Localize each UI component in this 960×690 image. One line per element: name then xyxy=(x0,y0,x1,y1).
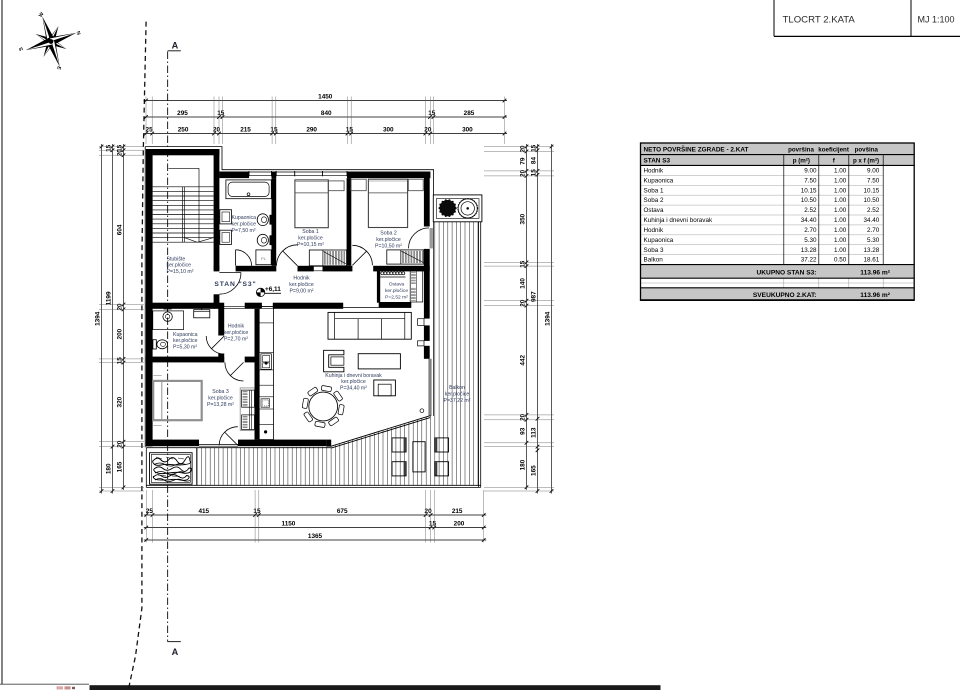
svg-text:TLOCRT 2.KATA: TLOCRT 2.KATA xyxy=(783,15,856,26)
svg-text:15: 15 xyxy=(117,357,124,365)
svg-text:165: 165 xyxy=(117,461,124,472)
svg-text:604: 604 xyxy=(117,224,124,235)
svg-text:1.00: 1.00 xyxy=(834,187,847,194)
svg-text:10.15: 10.15 xyxy=(801,187,817,194)
svg-text:1150: 1150 xyxy=(282,521,296,528)
svg-text:5.30: 5.30 xyxy=(867,237,880,244)
svg-text:15: 15 xyxy=(346,127,354,134)
svg-text:15: 15 xyxy=(531,144,538,152)
svg-text:Kupaonicaker.pločiceP=7,50 m²: Kupaonicaker.pločiceP=7,50 m² xyxy=(232,215,257,234)
svg-text:25: 25 xyxy=(146,508,154,515)
svg-text:250: 250 xyxy=(178,127,189,134)
svg-text:15: 15 xyxy=(428,110,436,117)
svg-text:Kupaonica: Kupaonica xyxy=(644,177,674,184)
svg-text:290: 290 xyxy=(306,127,317,134)
svg-text:Soba 3: Soba 3 xyxy=(644,247,664,254)
svg-text:10.50: 10.50 xyxy=(864,197,880,204)
svg-text:2.70: 2.70 xyxy=(867,227,880,234)
svg-text:1.00: 1.00 xyxy=(834,167,847,174)
svg-text:STAN "S3": STAN "S3" xyxy=(214,281,256,288)
svg-text:1365: 1365 xyxy=(308,533,323,540)
svg-text:415: 415 xyxy=(198,508,209,515)
svg-text:1.00: 1.00 xyxy=(834,237,847,244)
svg-text:Hodnik: Hodnik xyxy=(644,167,664,174)
svg-text:STAN S3: STAN S3 xyxy=(644,158,671,165)
svg-text:350: 350 xyxy=(520,213,527,224)
svg-text:1199: 1199 xyxy=(106,291,113,305)
svg-text:442: 442 xyxy=(520,354,527,365)
svg-text:10.15: 10.15 xyxy=(864,187,880,194)
svg-text:koeficijent: koeficijent xyxy=(818,147,849,154)
svg-text:Balkon: Balkon xyxy=(644,257,664,264)
svg-text:površina: površina xyxy=(788,147,814,154)
svg-text:15: 15 xyxy=(270,127,278,134)
svg-text:215: 215 xyxy=(240,127,251,134)
svg-text:povšina: povšina xyxy=(855,147,879,154)
svg-text:1450: 1450 xyxy=(318,94,333,101)
svg-text:285: 285 xyxy=(464,110,475,117)
svg-text:PL: PL xyxy=(261,256,267,261)
svg-text:15: 15 xyxy=(253,508,261,515)
svg-text:25: 25 xyxy=(146,127,154,134)
svg-text:1394: 1394 xyxy=(95,311,102,326)
svg-text:300: 300 xyxy=(462,127,473,134)
svg-text:+6,11: +6,11 xyxy=(265,286,281,293)
svg-text:Soba 1: Soba 1 xyxy=(644,187,664,194)
svg-text:5.30: 5.30 xyxy=(804,237,817,244)
svg-text:300: 300 xyxy=(383,127,394,134)
svg-text:A: A xyxy=(172,40,179,50)
svg-text:15: 15 xyxy=(531,169,538,177)
svg-text:140: 140 xyxy=(520,278,527,289)
svg-text:15: 15 xyxy=(520,260,527,268)
svg-text:180: 180 xyxy=(520,459,527,470)
svg-text:p (m²): p (m²) xyxy=(793,158,810,165)
svg-text:84: 84 xyxy=(531,157,538,165)
svg-text:SVEUKUPNO 2.KAT:: SVEUKUPNO 2.KAT: xyxy=(753,292,817,299)
svg-text:9.00: 9.00 xyxy=(804,167,817,174)
svg-text:13.28: 13.28 xyxy=(864,247,880,254)
svg-text:0.50: 0.50 xyxy=(834,257,847,264)
svg-text:1394: 1394 xyxy=(545,311,552,326)
svg-text:675: 675 xyxy=(337,508,348,515)
svg-text:2.52: 2.52 xyxy=(867,207,880,214)
svg-text:9.00: 9.00 xyxy=(867,167,880,174)
svg-text:295: 295 xyxy=(177,110,188,117)
svg-text:320: 320 xyxy=(117,396,124,407)
svg-text:18.61: 18.61 xyxy=(864,257,880,264)
svg-text:180: 180 xyxy=(106,463,113,474)
svg-text:840: 840 xyxy=(321,110,332,117)
svg-text:79: 79 xyxy=(520,157,527,165)
svg-text:MJ 1:100: MJ 1:100 xyxy=(918,15,955,25)
svg-text:200: 200 xyxy=(117,328,124,339)
svg-text:Kupaonica: Kupaonica xyxy=(644,237,674,244)
svg-text:34.40: 34.40 xyxy=(864,217,880,224)
svg-text:34.40: 34.40 xyxy=(801,217,817,224)
svg-text:7.50: 7.50 xyxy=(867,177,880,184)
svg-text:15: 15 xyxy=(217,110,225,117)
svg-text:987: 987 xyxy=(531,291,538,302)
svg-text:Soba 2: Soba 2 xyxy=(644,197,664,204)
svg-text:10.50: 10.50 xyxy=(801,197,817,204)
svg-text:Kuhinja i dnevni boravak: Kuhinja i dnevni boravak xyxy=(644,217,713,224)
svg-text:Kupaonicaker.pločiceP=5,30 m²: Kupaonicaker.pločiceP=5,30 m² xyxy=(173,332,198,351)
svg-text:200: 200 xyxy=(454,521,465,528)
svg-text:7.50: 7.50 xyxy=(804,177,817,184)
svg-text:1.00: 1.00 xyxy=(834,197,847,204)
svg-text:p x f (m²): p x f (m²) xyxy=(853,158,879,165)
svg-text:15: 15 xyxy=(106,144,113,152)
svg-text:2.70: 2.70 xyxy=(804,227,817,234)
svg-text:1.00: 1.00 xyxy=(834,247,847,254)
svg-text:Ostava: Ostava xyxy=(644,207,664,214)
svg-text:113.96 m²: 113.96 m² xyxy=(860,270,890,277)
svg-text:UKUPNO STAN S3:: UKUPNO STAN S3: xyxy=(757,270,817,277)
svg-text:37.22: 37.22 xyxy=(801,257,817,264)
svg-text:1.00: 1.00 xyxy=(834,177,847,184)
svg-text:1.00: 1.00 xyxy=(834,217,847,224)
svg-text:93: 93 xyxy=(520,427,527,435)
svg-text:1.00: 1.00 xyxy=(834,207,847,214)
svg-text:13.28: 13.28 xyxy=(801,247,817,254)
svg-text:113: 113 xyxy=(531,427,538,438)
svg-text:215: 215 xyxy=(452,508,463,515)
svg-text:15: 15 xyxy=(429,521,437,528)
svg-text:Hodnik: Hodnik xyxy=(644,227,664,234)
svg-text:2.52: 2.52 xyxy=(804,207,817,214)
svg-text:1.00: 1.00 xyxy=(834,227,847,234)
svg-text:NETO POVRŠINE ZGRADE - 2.KAT: NETO POVRŠINE ZGRADE - 2.KAT xyxy=(644,145,749,154)
svg-text:A: A xyxy=(172,647,179,657)
svg-text:165: 165 xyxy=(531,465,538,476)
svg-text:113.96 m²: 113.96 m² xyxy=(860,292,890,299)
